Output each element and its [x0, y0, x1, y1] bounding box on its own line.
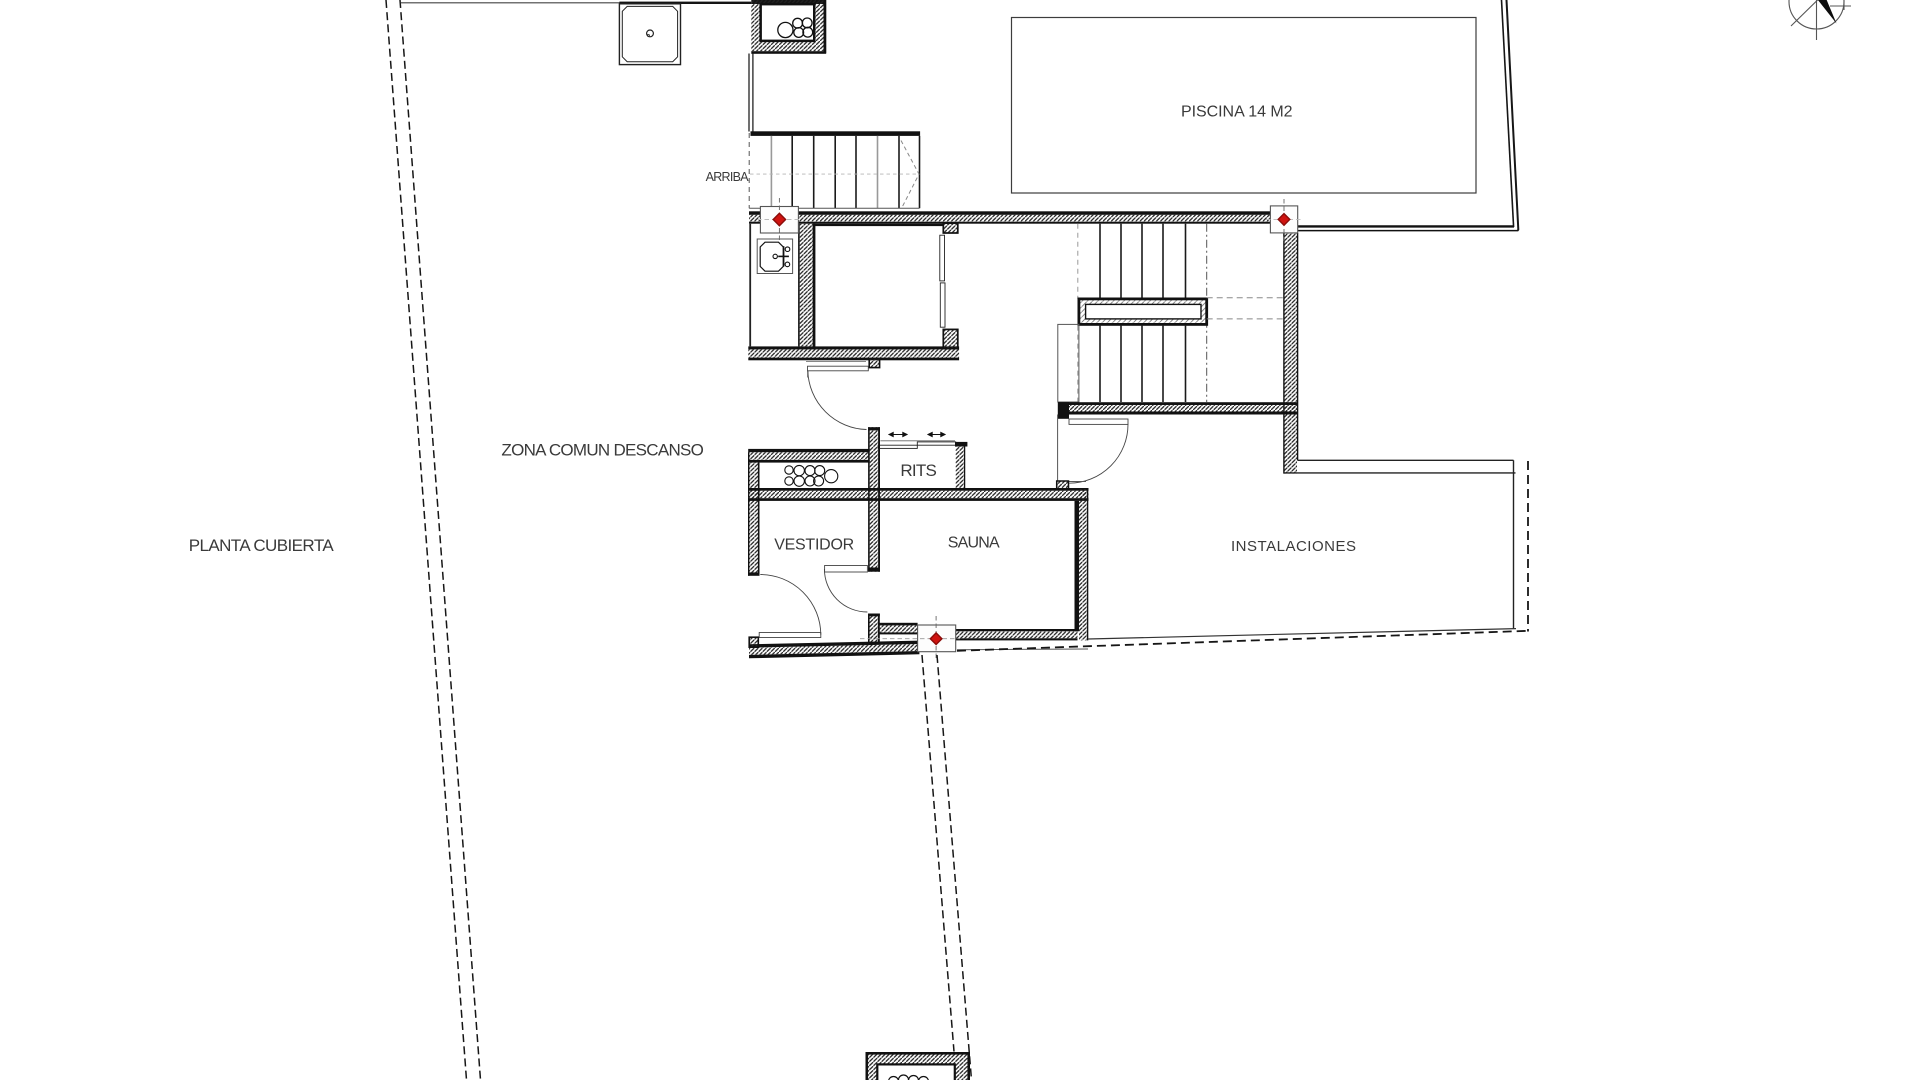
- svg-text:RITS: RITS: [900, 461, 937, 480]
- svg-text:ZONA COMUN DESCANSO: ZONA COMUN DESCANSO: [501, 441, 704, 460]
- svg-text:PLANTA CUBIERTA: PLANTA CUBIERTA: [189, 536, 335, 555]
- svg-text:VESTIDOR: VESTIDOR: [774, 537, 854, 554]
- svg-text:ARRIBA: ARRIBA: [706, 170, 750, 184]
- svg-text:PISCINA 14 M2: PISCINA 14 M2: [1181, 104, 1293, 121]
- svg-text:INSTALACIONES: INSTALACIONES: [1231, 538, 1356, 555]
- svg-text:SAUNA: SAUNA: [948, 535, 1000, 552]
